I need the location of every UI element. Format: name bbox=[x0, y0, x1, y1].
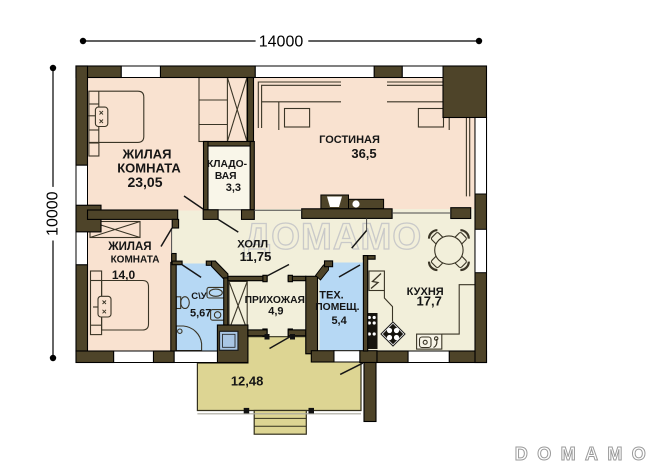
svg-text:4,9: 4,9 bbox=[268, 306, 283, 318]
svg-text:КЛАДО-: КЛАДО- bbox=[207, 159, 248, 170]
svg-text:12,48: 12,48 bbox=[231, 373, 264, 388]
svg-text:ПРИХОЖАЯ: ПРИХОЖАЯ bbox=[245, 295, 305, 306]
svg-text:10000: 10000 bbox=[45, 191, 62, 236]
svg-text:ТЕХ.: ТЕХ. bbox=[319, 289, 343, 301]
svg-text:23,05: 23,05 bbox=[127, 174, 162, 190]
svg-text:5,4: 5,4 bbox=[331, 315, 347, 327]
svg-text:17,7: 17,7 bbox=[417, 293, 442, 308]
svg-text:ЖИЛАЯ: ЖИЛАЯ bbox=[107, 241, 151, 253]
svg-text:С\У: С\У bbox=[191, 291, 207, 302]
svg-text:11,75: 11,75 bbox=[240, 249, 272, 264]
svg-text:14000: 14000 bbox=[259, 33, 304, 50]
svg-text:3,3: 3,3 bbox=[226, 182, 241, 194]
svg-text:ПОМЕЩ.: ПОМЕЩ. bbox=[315, 302, 359, 313]
svg-text:14,0: 14,0 bbox=[112, 268, 136, 282]
svg-text:36,5: 36,5 bbox=[351, 146, 376, 161]
svg-text:ВАЯ: ВАЯ bbox=[215, 171, 237, 182]
svg-text:5,67: 5,67 bbox=[190, 308, 211, 320]
svg-text:ГОСТИНАЯ: ГОСТИНАЯ bbox=[319, 134, 380, 146]
svg-text:DOMAMO: DOMAMO bbox=[515, 444, 655, 464]
svg-text:КОМНАТА: КОМНАТА bbox=[111, 254, 160, 265]
